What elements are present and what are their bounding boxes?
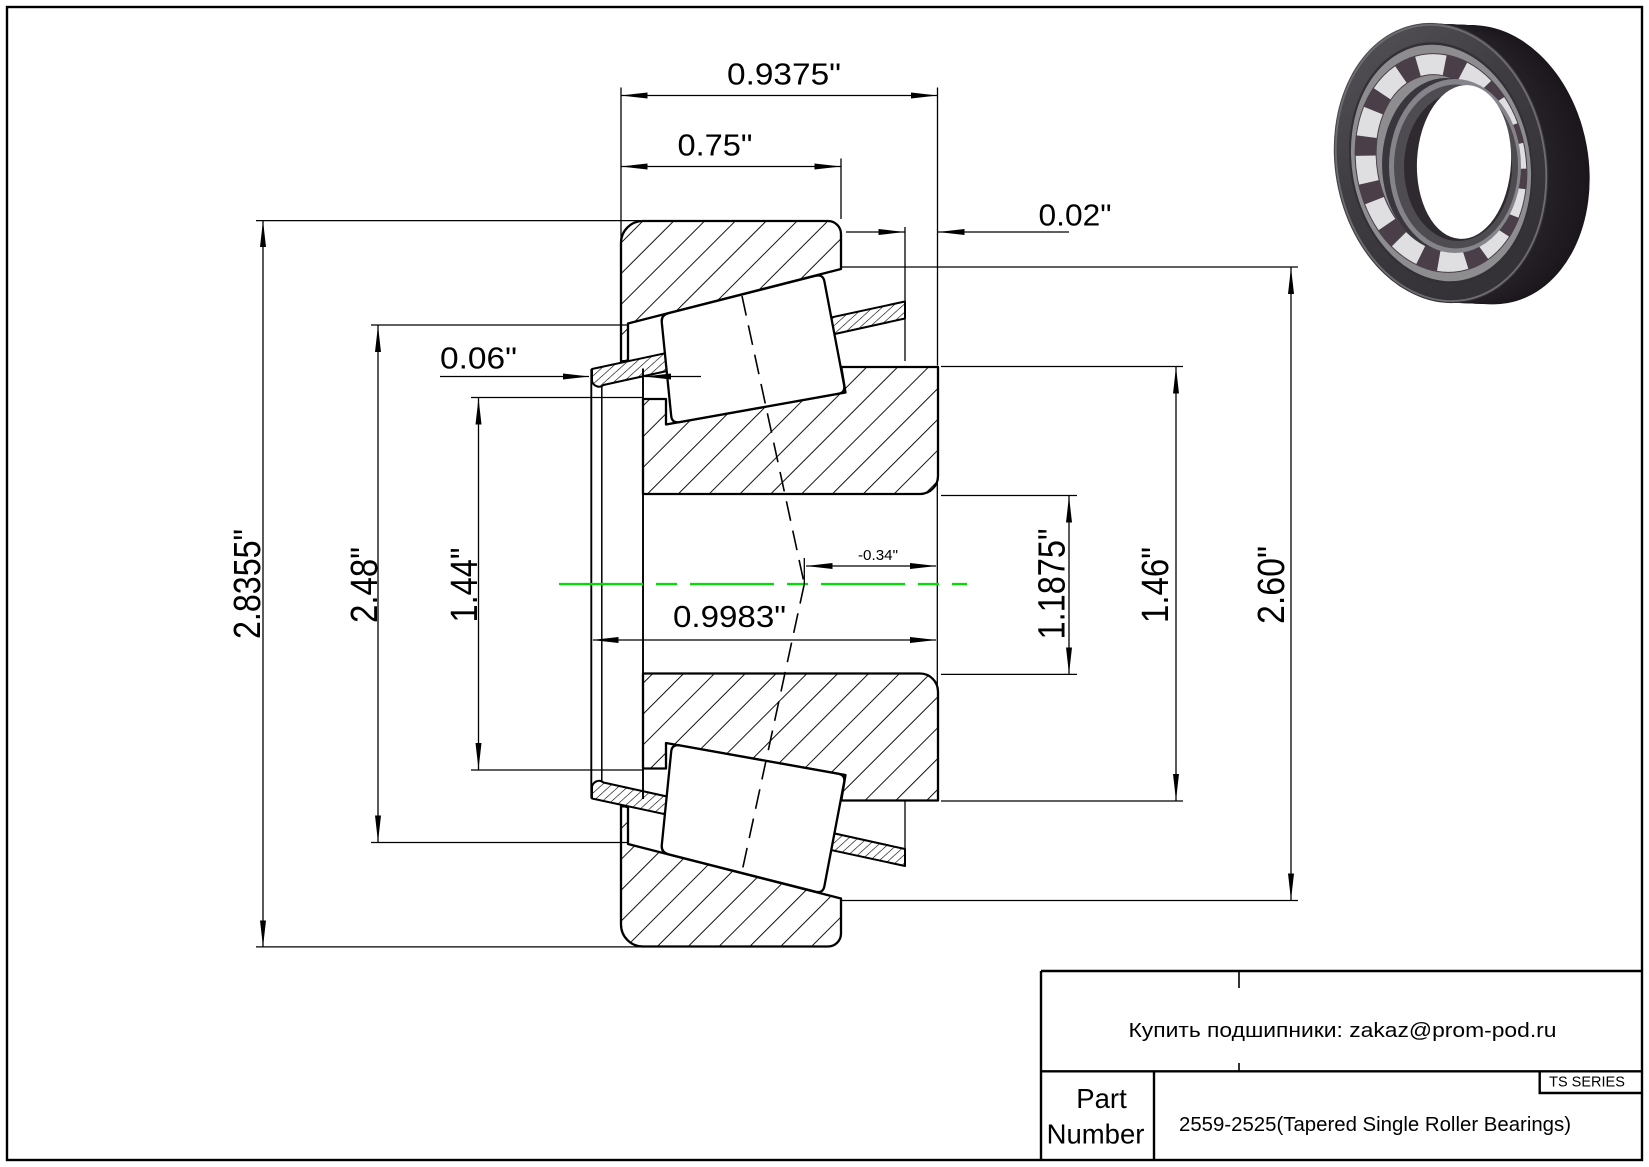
svg-text:Part: Part <box>1076 1083 1127 1114</box>
svg-text:0.9983": 0.9983" <box>673 600 786 634</box>
svg-text:0.06": 0.06" <box>440 342 517 376</box>
svg-text:-0.34": -0.34" <box>858 548 898 564</box>
svg-text:0.75": 0.75" <box>678 129 753 163</box>
svg-text:Купить подшипники: zakaz@prom-: Купить подшипники: zakaz@prom-pod.ru <box>1129 1020 1557 1042</box>
svg-text:1.46": 1.46" <box>1135 547 1177 623</box>
svg-text:TS SERIES: TS SERIES <box>1549 1075 1625 1091</box>
svg-text:2559-2525(Tapered Single Rolle: 2559-2525(Tapered Single Roller Bearings… <box>1179 1114 1571 1136</box>
svg-text:2.60": 2.60" <box>1251 546 1293 624</box>
svg-text:2.48": 2.48" <box>344 547 386 623</box>
svg-text:2.8355": 2.8355" <box>227 529 269 639</box>
svg-text:0.9375": 0.9375" <box>727 58 841 92</box>
svg-text:0.02": 0.02" <box>1039 199 1112 233</box>
svg-text:1.44": 1.44" <box>444 548 486 623</box>
svg-text:1.1875": 1.1875" <box>1032 529 1074 640</box>
svg-text:Number: Number <box>1047 1119 1145 1150</box>
